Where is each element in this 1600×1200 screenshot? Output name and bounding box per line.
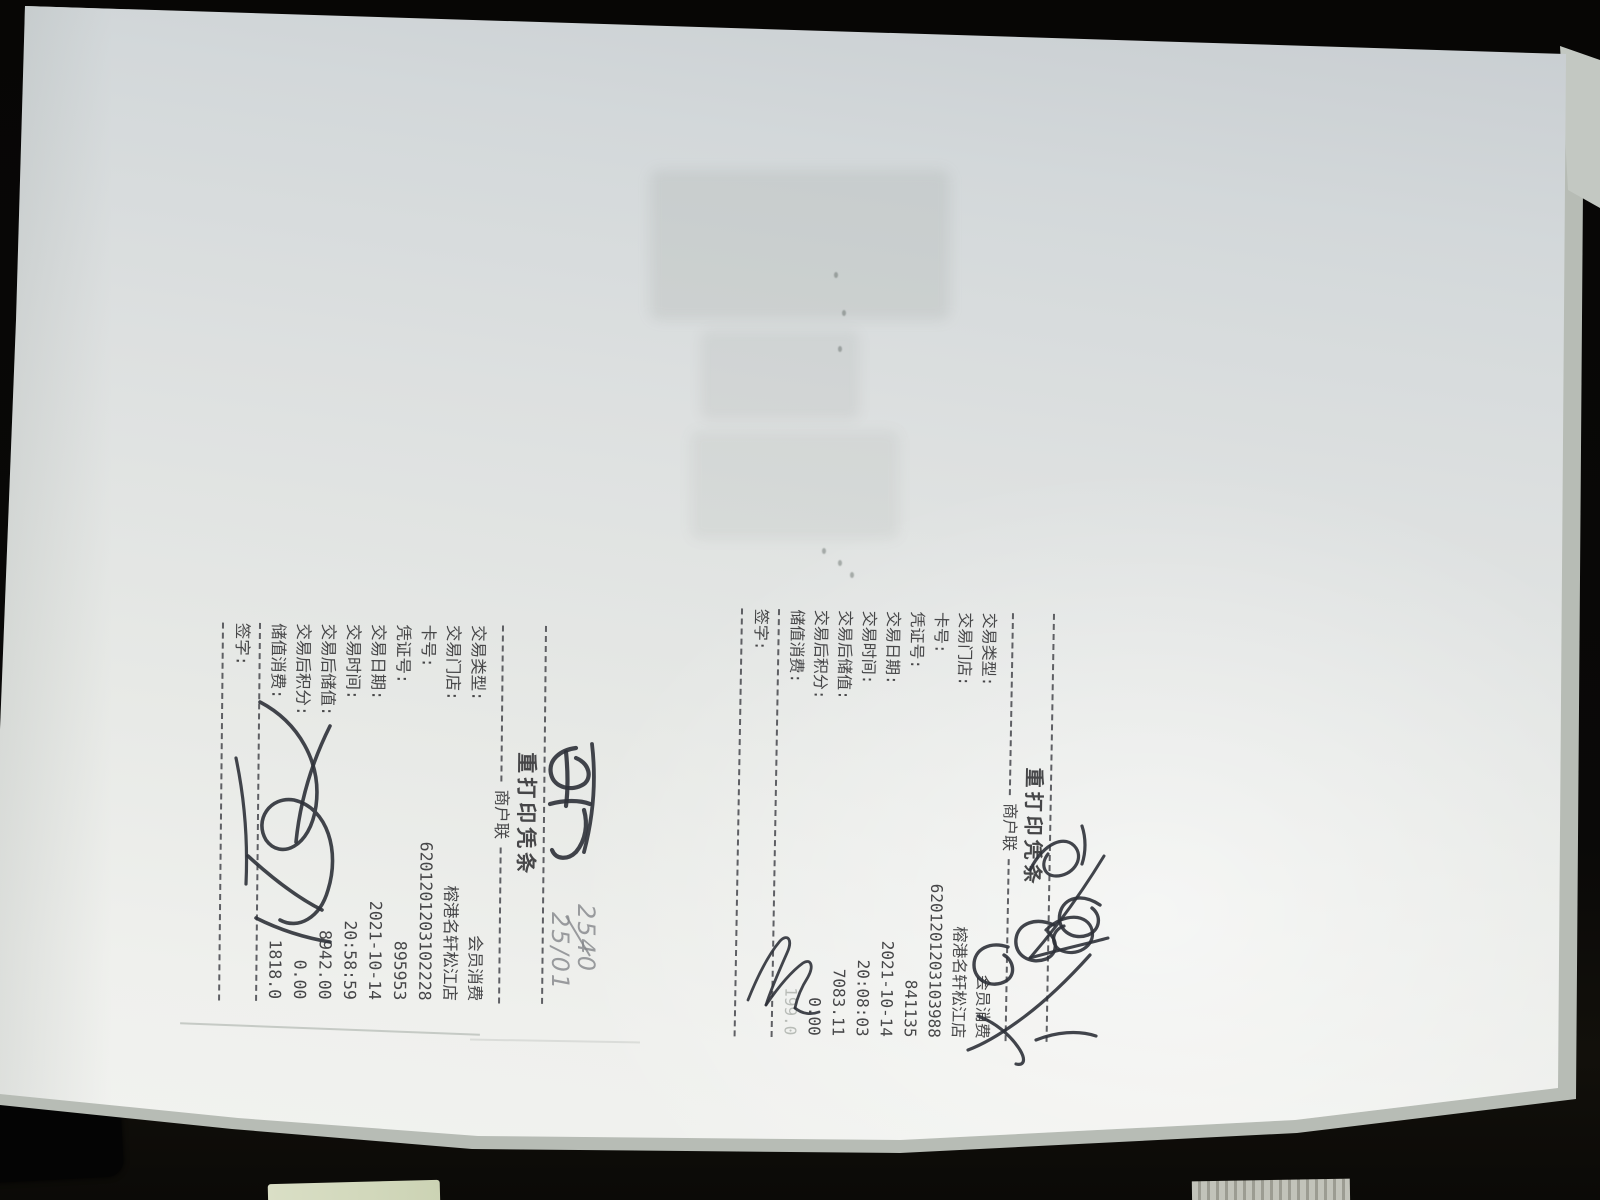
field-label: 交易后积分: — [807, 610, 833, 700]
copy-label-row: 商户联 — [487, 625, 515, 1003]
field-label: 交易时间: — [340, 624, 366, 700]
field-label: 交易时间: — [856, 610, 881, 684]
speck — [850, 572, 854, 578]
field-value: 199.0 — [778, 987, 803, 1036]
field-value: 会员消费 — [462, 935, 488, 1001]
receipt-merchant-copy-left: 重打印凭条 商户联 交易类型:会员消费 交易门店:榕港名轩松江店 卡号:6201… — [212, 622, 552, 1003]
dashed-separator — [255, 623, 261, 1001]
field-value: 6201201203103988 — [922, 884, 949, 1039]
field-label: 凭证号: — [904, 611, 929, 669]
field-label: 交易日期: — [880, 611, 905, 685]
ghost-bleedthrough — [650, 170, 950, 320]
dashed-top-rule — [541, 626, 547, 1004]
field-label: 储值消费: — [784, 609, 809, 683]
field-label: 储值消费: — [265, 623, 291, 699]
dash-rule — [1005, 859, 1010, 1041]
field-value: 2021-10-14 — [874, 940, 900, 1037]
copy-label: 商户联 — [997, 803, 1022, 851]
receipt-merchant-copy-right: 重打印凭条 商户联 交易类型:会员消费 交易门店:榕港名轩松江店 卡号:6201… — [733, 608, 1060, 1042]
field-label: 交易后积分: — [290, 623, 316, 716]
field-label: 交易门店: — [440, 625, 466, 701]
field-row-store: 交易门店:榕港名轩松江店 — [437, 625, 466, 1003]
speck — [842, 310, 846, 316]
striped-object — [1192, 1179, 1350, 1200]
field-label: 交易日期: — [365, 624, 391, 700]
signature-label: 签字: — [225, 623, 255, 1001]
speck — [838, 346, 842, 352]
field-value: 榕港名轩松江店 — [437, 885, 463, 1001]
field-value: 1818.0 — [262, 939, 288, 999]
field-value: 20:58:59 — [337, 920, 363, 1000]
receipt-title: 重打印凭条 — [511, 626, 541, 1004]
dash-rule — [500, 625, 504, 781]
dash-rule — [1009, 613, 1014, 795]
field-value: 20:08:03 — [850, 959, 875, 1036]
field-row-stored-value-spent: 储值消费:1818.0 — [262, 623, 291, 1001]
field-value: 会员消费 — [970, 974, 995, 1038]
field-label: 交易后储值: — [831, 610, 857, 700]
field-value: 8942.00 — [312, 930, 338, 1000]
field-value: 6201201203102228 — [412, 842, 439, 1001]
field-row-balance-after: 交易后储值:8942.00 — [312, 624, 341, 1002]
field-value: 0.00 — [287, 959, 312, 999]
field-label: 交易门店: — [952, 612, 977, 686]
field-row-voucher-number: 凭证号:895953 — [387, 624, 416, 1002]
field-row-transaction-type: 交易类型:会员消费 — [462, 625, 491, 1003]
signature-label: 签字: — [741, 609, 774, 1037]
copy-label: 商户联 — [489, 790, 514, 840]
field-value: 2021-10-14 — [362, 901, 388, 1001]
field-label: 卡号: — [928, 612, 953, 654]
dashed-bottom-rule — [218, 623, 224, 1001]
speck — [834, 272, 838, 278]
field-value: 榕港名轩松江店 — [946, 926, 972, 1038]
ghost-bleedthrough — [700, 330, 860, 420]
field-label: 交易后储值: — [315, 624, 341, 717]
speck — [822, 548, 826, 554]
speck — [838, 560, 842, 566]
ghost-bleedthrough — [690, 430, 900, 540]
field-row-time: 交易时间:20:58:59 — [337, 624, 366, 1002]
field-row-date: 交易日期:2021-10-14 — [362, 624, 391, 1002]
field-label: 交易类型: — [976, 613, 1001, 687]
dash-rule — [498, 847, 502, 1003]
green-object — [268, 1180, 441, 1200]
field-row-card-number: 卡号:6201201203102228 — [412, 625, 441, 1003]
field-value: 7083.11 — [826, 969, 851, 1037]
field-value: 0.00 — [802, 997, 827, 1036]
photo-scene: 重打印凭条 商户联 交易类型:会员消费 交易门店:榕港名轩松江店 卡号:6201… — [0, 0, 1600, 1200]
field-value: 895953 — [387, 941, 413, 1001]
field-label: 交易类型: — [465, 625, 491, 701]
field-label: 卡号: — [416, 625, 441, 668]
field-label: 凭证号: — [390, 624, 416, 684]
field-value: 841135 — [898, 979, 923, 1037]
